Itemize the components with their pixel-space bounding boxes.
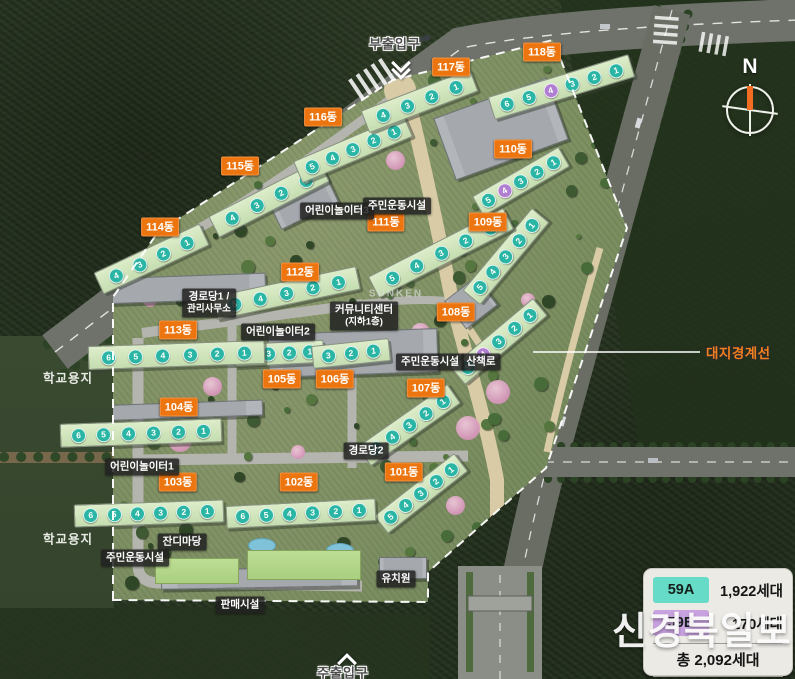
facility-label: 경로당2	[344, 442, 389, 459]
building-label-114동: 114동	[141, 218, 179, 237]
building-label-108동: 108동	[437, 303, 475, 322]
building-label-113동: 113동	[159, 321, 197, 340]
building-label-117동: 117동	[432, 58, 470, 77]
school-site-label-1: 학교용지	[43, 368, 93, 387]
site-plan-map: 54321101동654321102동654321103동654321104동4…	[0, 0, 795, 679]
legend-value-59a: 1,922세대	[720, 580, 783, 601]
compass: N	[726, 86, 774, 134]
facility-label: 잔디마당	[158, 533, 207, 550]
facility-label: 산책로	[462, 353, 501, 370]
facility-label: 커뮤니티센터(지하1층)	[330, 302, 398, 331]
facility-label: 유치원	[377, 570, 416, 587]
compass-needle-icon	[747, 86, 753, 110]
building-label-105동: 105동	[263, 370, 301, 389]
facility-label: 판매시설	[216, 596, 265, 613]
building-label-102동: 102동	[280, 473, 318, 492]
building-label-106동: 106동	[316, 370, 354, 389]
parcel-boundary-label: 대지경계선	[706, 342, 771, 362]
building-label-107동: 107동	[407, 379, 445, 398]
sunken-plaza-label: SUNKEN	[369, 289, 423, 300]
building-label-116동: 116동	[304, 108, 342, 127]
facility-label: 주민운동시설	[363, 197, 431, 214]
facility-label: 어린이놀이터1	[105, 458, 179, 475]
facility-label: 어린이놀이터2	[241, 323, 315, 340]
building-label-110동: 110동	[494, 140, 532, 159]
sub-entrance-label: 부출입구	[369, 34, 421, 53]
newspaper-watermark: 신경북일보	[612, 600, 792, 655]
building-label-109동: 109동	[469, 213, 507, 232]
facility-label: 주민운동시설	[101, 549, 169, 566]
building-label-112동: 112동	[281, 263, 319, 282]
facility-label: 주민운동시설	[396, 353, 464, 370]
building-label-118동: 118동	[523, 43, 561, 62]
building-label-104동: 104동	[160, 398, 198, 417]
building-label-101동: 101동	[385, 463, 423, 482]
building-label-115동: 115동	[221, 157, 259, 176]
facility-label: 경로당1 /관리사무소	[182, 289, 236, 318]
school-site-label-2: 학교용지	[43, 529, 93, 548]
north-letter: N	[742, 55, 757, 79]
